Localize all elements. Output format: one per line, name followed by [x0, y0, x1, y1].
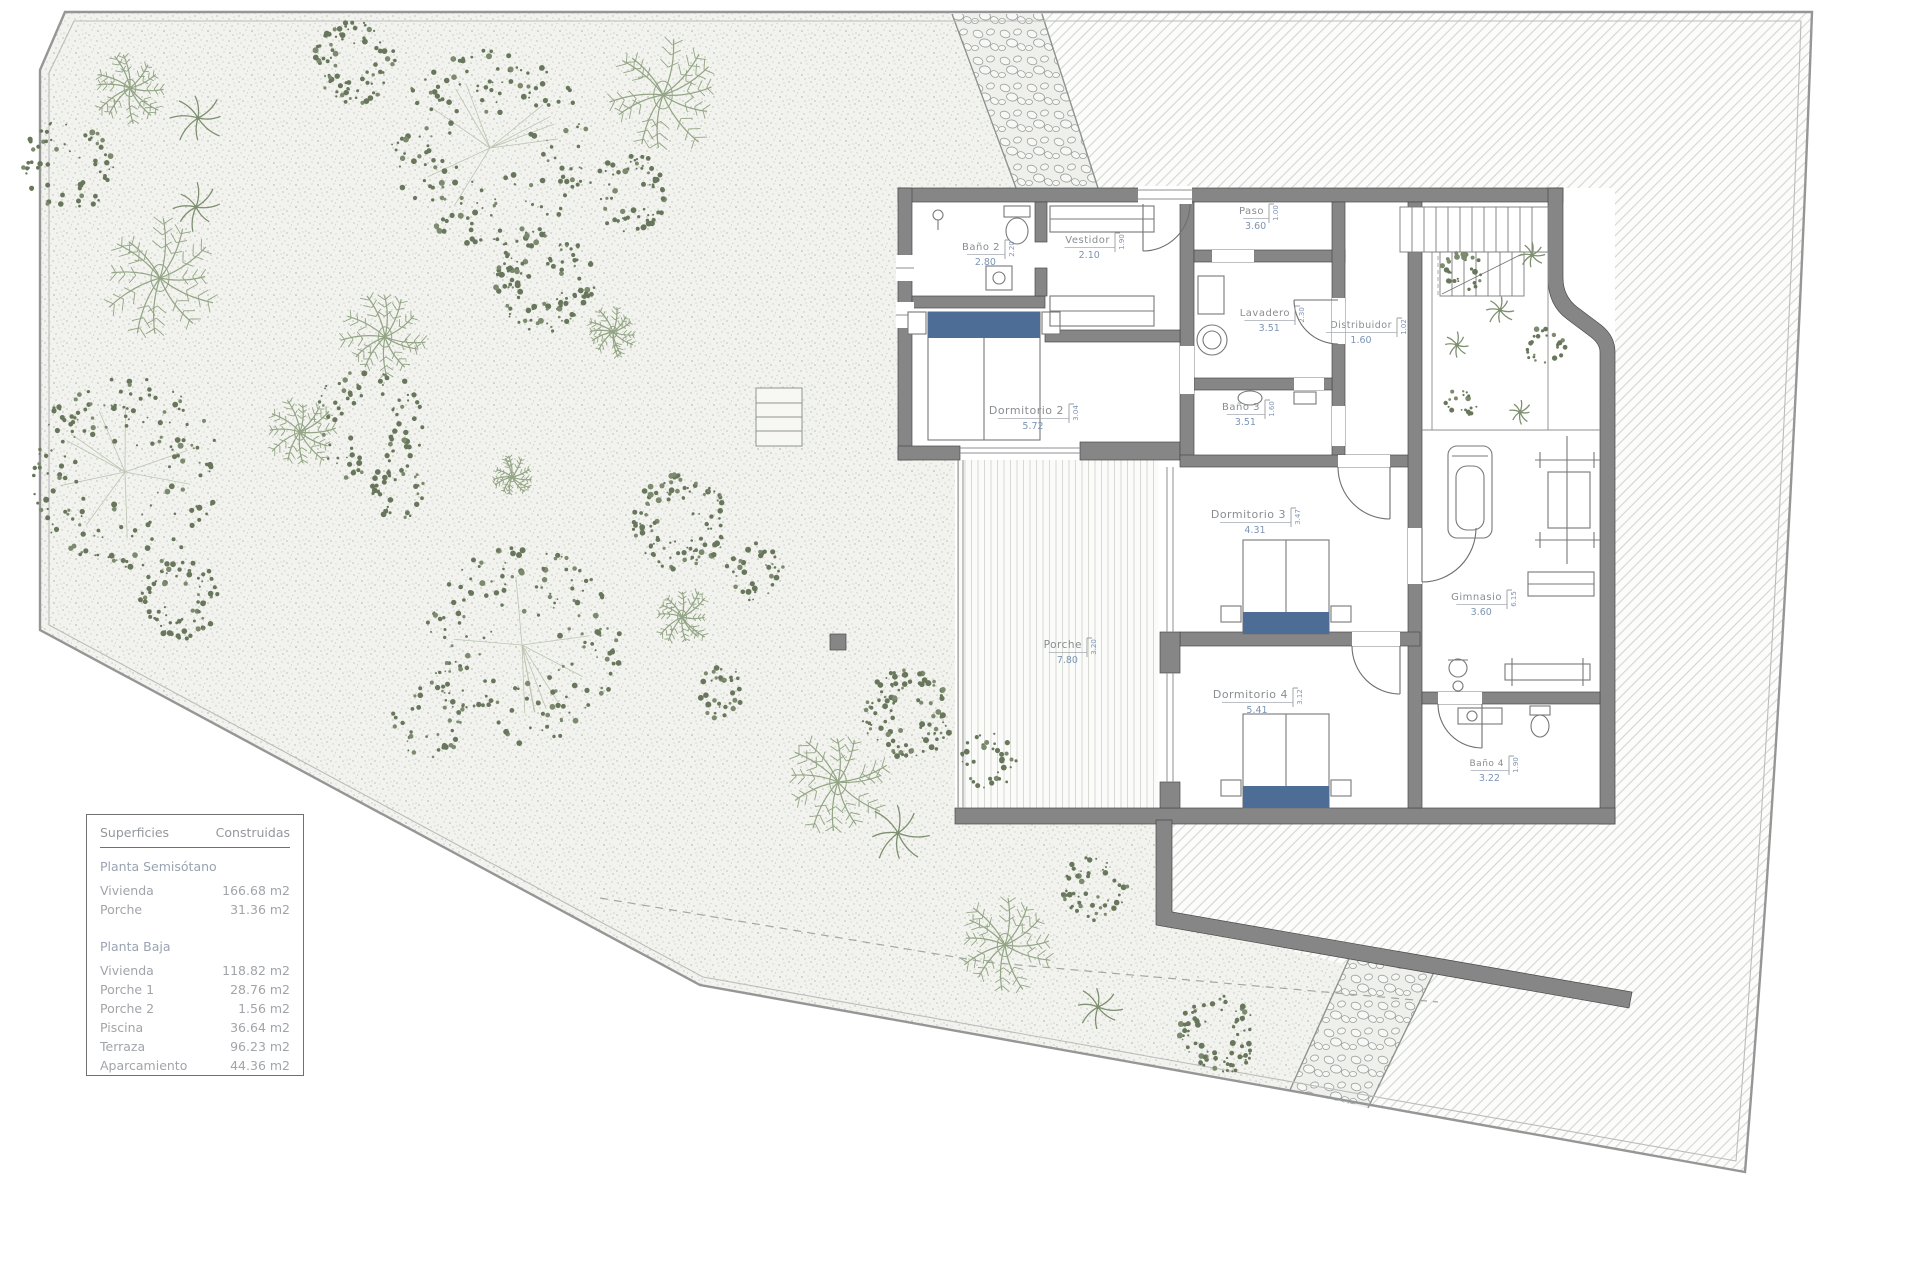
svg-text:2.80: 2.80	[975, 257, 996, 268]
surface-table-header: Superficies Construidas	[100, 825, 290, 848]
surface-row-value: 36.64 m2	[230, 1018, 290, 1037]
svg-text:3.51: 3.51	[1235, 417, 1256, 428]
svg-text:5.72: 5.72	[1022, 421, 1043, 432]
svg-text:Paso: Paso	[1239, 206, 1264, 217]
surface-row: Aparcamiento44.36 m2	[100, 1056, 290, 1075]
svg-text:3.47: 3.47	[1294, 509, 1302, 525]
surface-row: Porche31.36 m2	[100, 900, 290, 919]
surface-row-label: Porche	[100, 900, 142, 919]
svg-text:Porche: Porche	[1044, 639, 1082, 651]
surface-row: Vivienda166.68 m2	[100, 881, 290, 900]
surface-row-value: 1.56 m2	[238, 999, 290, 1018]
svg-text:3.20: 3.20	[1090, 639, 1098, 655]
svg-text:Vestidor: Vestidor	[1065, 235, 1110, 246]
surface-row-label: Terraza	[100, 1037, 145, 1056]
surface-row-value: 166.68 m2	[222, 881, 290, 900]
surface-table-body: Planta SemisótanoVivienda166.68 m2Porche…	[100, 859, 290, 1075]
svg-text:2.30: 2.30	[1298, 307, 1306, 323]
svg-text:1.00: 1.00	[1272, 205, 1280, 221]
svg-text:3.04: 3.04	[1072, 405, 1080, 421]
svg-text:1.90: 1.90	[1118, 234, 1126, 250]
svg-text:3.51: 3.51	[1259, 323, 1280, 334]
svg-text:3.22: 3.22	[1479, 773, 1500, 784]
surface-table-section: Planta BajaVivienda118.82 m2Porche 128.7…	[100, 939, 290, 1075]
garden-steps	[756, 388, 802, 446]
surface-row-value: 28.76 m2	[230, 980, 290, 999]
surface-row-value: 118.82 m2	[222, 961, 290, 980]
surface-row-value: 96.23 m2	[230, 1037, 290, 1056]
surface-row: Porche 21.56 m2	[100, 999, 290, 1018]
surface-row-label: Vivienda	[100, 881, 154, 900]
svg-text:2.20: 2.20	[1008, 241, 1016, 257]
svg-text:1.60: 1.60	[1350, 335, 1371, 346]
surface-section-title: Planta Semisótano	[100, 859, 290, 874]
svg-text:4.31: 4.31	[1244, 525, 1265, 536]
svg-text:Baño 2: Baño 2	[962, 242, 1000, 253]
svg-text:7.80: 7.80	[1057, 655, 1078, 666]
svg-text:1.02: 1.02	[1400, 319, 1408, 335]
svg-text:6.15: 6.15	[1510, 591, 1518, 607]
surface-table-header-left: Superficies	[100, 825, 169, 840]
svg-text:2.10: 2.10	[1079, 250, 1100, 261]
svg-text:5.41: 5.41	[1246, 705, 1267, 716]
surface-row-label: Aparcamiento	[100, 1056, 187, 1075]
surface-row-label: Piscina	[100, 1018, 143, 1037]
surface-row-value: 31.36 m2	[230, 900, 290, 919]
svg-text:3.60: 3.60	[1471, 607, 1492, 618]
surface-table: Superficies Construidas Planta Semisótan…	[86, 814, 304, 1076]
surface-row: Vivienda118.82 m2	[100, 961, 290, 980]
svg-text:1.60: 1.60	[1268, 401, 1276, 417]
surface-row-label: Vivienda	[100, 961, 154, 980]
svg-text:Baño 4: Baño 4	[1470, 759, 1505, 769]
surface-row-label: Porche 2	[100, 999, 154, 1018]
svg-text:Dormitorio 3: Dormitorio 3	[1211, 508, 1286, 521]
surface-section-title: Planta Baja	[100, 939, 290, 954]
surface-table-header-right: Construidas	[216, 825, 290, 840]
svg-text:Gimnasio: Gimnasio	[1451, 592, 1502, 603]
surface-row-value: 44.36 m2	[230, 1056, 290, 1075]
site-plan: Baño 22.802.20Vestidor2.101.90Paso3.601.…	[0, 0, 1920, 1280]
svg-text:Distribuidor: Distribuidor	[1330, 320, 1392, 331]
svg-text:Lavadero: Lavadero	[1240, 308, 1290, 319]
svg-text:Dormitorio 4: Dormitorio 4	[1213, 688, 1288, 701]
surface-row: Piscina36.64 m2	[100, 1018, 290, 1037]
surface-row-label: Porche 1	[100, 980, 154, 999]
porch-floor	[958, 460, 1158, 808]
svg-text:Baño 3: Baño 3	[1222, 402, 1260, 413]
surface-row: Terraza96.23 m2	[100, 1037, 290, 1056]
surface-table-section: Planta SemisótanoVivienda166.68 m2Porche…	[100, 859, 290, 919]
svg-text:3.12: 3.12	[1296, 689, 1304, 705]
svg-text:Dormitorio 2: Dormitorio 2	[989, 404, 1064, 417]
surface-row: Porche 128.76 m2	[100, 980, 290, 999]
svg-text:1.90: 1.90	[1512, 757, 1520, 773]
svg-text:3.60: 3.60	[1245, 221, 1266, 232]
